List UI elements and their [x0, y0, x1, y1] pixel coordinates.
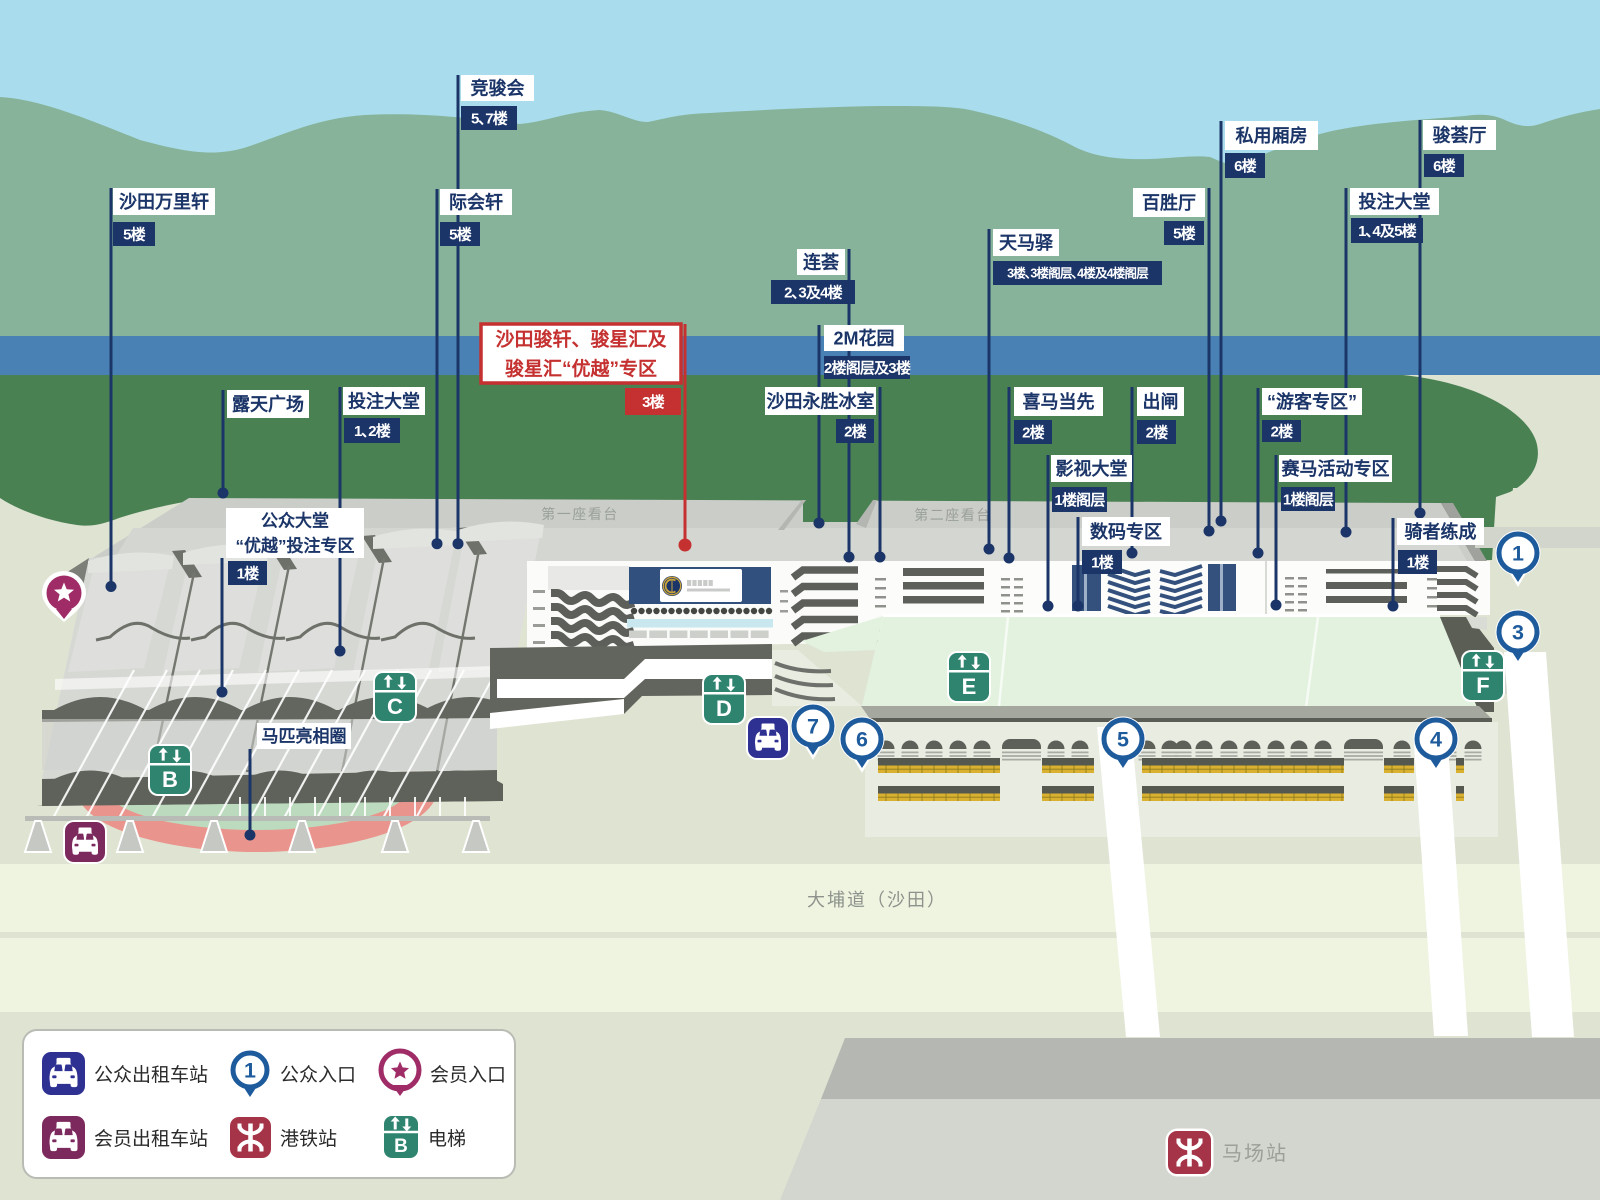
svg-text:出闸: 出闸: [1143, 391, 1179, 412]
svg-text:6楼: 6楼: [1234, 157, 1257, 175]
svg-text:2M花园: 2M花园: [833, 328, 894, 349]
svg-text:1楼: 1楼: [1407, 553, 1430, 571]
svg-text:2楼: 2楼: [1271, 422, 1294, 440]
svg-text:3: 3: [1512, 621, 1524, 645]
svg-text:沙田骏轩、骏星汇及: 沙田骏轩、骏星汇及: [495, 328, 667, 351]
svg-text:E: E: [962, 674, 977, 699]
svg-text:1楼阁层: 1楼阁层: [1283, 490, 1334, 508]
svg-text:私用厢房: 私用厢房: [1236, 125, 1308, 146]
svg-text:赛马活动专区: 赛马活动专区: [1281, 458, 1390, 479]
svg-text:第二座看台: 第二座看台: [914, 507, 992, 523]
svg-text:5楼: 5楼: [1173, 224, 1196, 242]
svg-text:会员入口: 会员入口: [430, 1064, 506, 1086]
svg-text:7: 7: [807, 715, 819, 739]
svg-text:喜马当先: 喜马当先: [1023, 391, 1095, 412]
svg-text:1楼: 1楼: [1091, 553, 1114, 571]
svg-text:D: D: [716, 696, 732, 721]
svg-text:天马驿: 天马驿: [999, 233, 1054, 253]
svg-text:2楼: 2楼: [1146, 423, 1169, 441]
svg-text:马匹亮相圈: 马匹亮相圈: [262, 726, 347, 746]
svg-text:骑者练成: 骑者练成: [1405, 521, 1477, 542]
svg-text:B: B: [162, 767, 178, 792]
svg-text:大埔道（沙田）: 大埔道（沙田）: [807, 890, 947, 910]
svg-text:2楼: 2楼: [1022, 423, 1045, 441]
svg-text:影视大堂: 影视大堂: [1056, 458, 1128, 479]
svg-text:第一座看台: 第一座看台: [541, 506, 619, 522]
svg-text:3楼､3楼阁层､4楼及4楼阁层: 3楼､3楼阁层､4楼及4楼阁层: [1007, 266, 1149, 281]
svg-text:会员出租车站: 会员出租车站: [94, 1128, 208, 1150]
svg-text:连荟: 连荟: [803, 252, 840, 273]
svg-text:骏荟厅: 骏荟厅: [1433, 125, 1487, 146]
svg-text:B: B: [394, 1136, 408, 1157]
svg-text:5: 5: [1117, 728, 1129, 752]
svg-text:马场站: 马场站: [1222, 1142, 1288, 1165]
svg-text:6: 6: [856, 728, 868, 752]
svg-text:6楼: 6楼: [1433, 157, 1456, 175]
svg-text:2､3及4楼: 2､3及4楼: [784, 283, 843, 301]
svg-text:港铁站: 港铁站: [280, 1128, 337, 1150]
svg-text:沙田万里轩: 沙田万里轩: [119, 191, 209, 212]
svg-text:4: 4: [1430, 728, 1442, 752]
svg-text:“优越”投注专区: “优越”投注专区: [236, 536, 355, 556]
svg-text:“游客专区”: “游客专区”: [1267, 391, 1357, 412]
svg-text:露天广场: 露天广场: [232, 394, 304, 415]
svg-text:5楼: 5楼: [449, 225, 472, 243]
svg-text:沙田永胜冰室: 沙田永胜冰室: [767, 391, 875, 412]
svg-text:投注大堂: 投注大堂: [1359, 191, 1431, 212]
svg-text:2楼阁层及3楼: 2楼阁层及3楼: [824, 359, 911, 377]
svg-text:电梯: 电梯: [428, 1128, 466, 1150]
svg-text:1､4及5楼: 1､4及5楼: [1358, 222, 1417, 240]
svg-text:2楼: 2楼: [844, 422, 867, 440]
svg-text:竞骏会: 竞骏会: [471, 78, 525, 99]
svg-text:百胜厅: 百胜厅: [1142, 193, 1196, 213]
svg-text:数码专区: 数码专区: [1090, 521, 1162, 542]
svg-text:际会轩: 际会轩: [449, 192, 503, 213]
svg-text:1: 1: [1512, 542, 1524, 566]
svg-text:F: F: [1476, 673, 1489, 698]
svg-text:骏星汇“优越”专区: 骏星汇“优越”专区: [505, 357, 657, 380]
svg-text:5､7楼: 5､7楼: [471, 109, 508, 127]
svg-text:公众大堂: 公众大堂: [261, 511, 329, 531]
svg-text:5楼: 5楼: [123, 225, 146, 243]
svg-text:1楼阁层: 1楼阁层: [1054, 491, 1105, 509]
svg-text:3楼: 3楼: [642, 393, 665, 411]
svg-text:C: C: [387, 694, 403, 719]
svg-text:1､2楼: 1､2楼: [354, 422, 391, 440]
svg-text:1: 1: [244, 1059, 256, 1083]
svg-text:公众出租车站: 公众出租车站: [94, 1064, 208, 1086]
svg-text:公众入口: 公众入口: [280, 1064, 356, 1086]
svg-text:1楼: 1楼: [237, 564, 260, 582]
svg-text:投注大堂: 投注大堂: [348, 391, 420, 412]
